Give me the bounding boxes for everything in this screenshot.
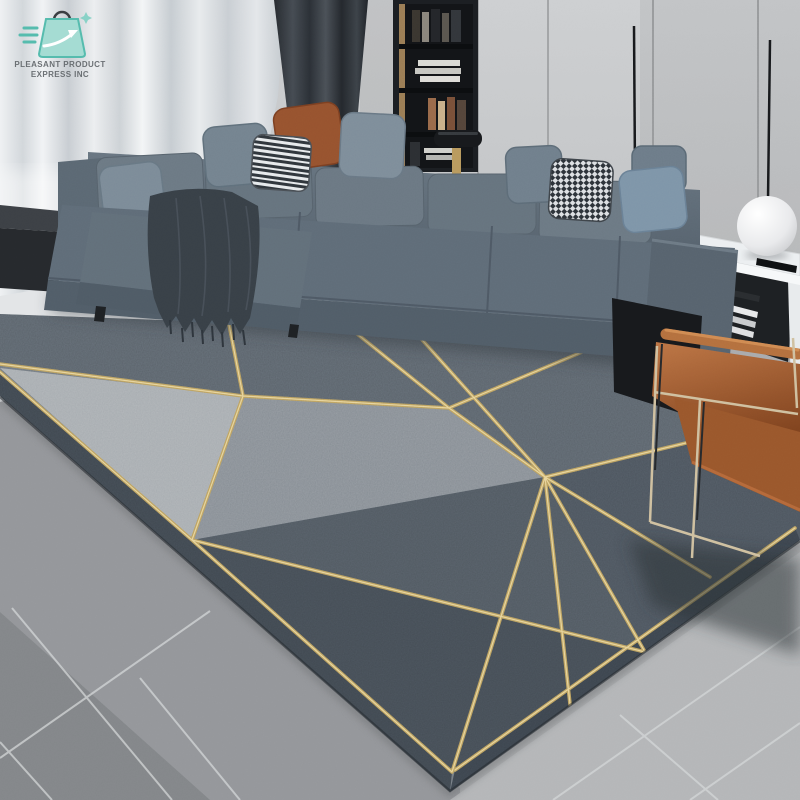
brand-name-line2: EXPRESS INC	[4, 70, 116, 80]
photo-grain	[0, 0, 800, 800]
photo-canvas	[0, 0, 800, 800]
speed-lines	[20, 28, 37, 42]
shopping-bag-express-icon	[10, 4, 110, 60]
bag-body	[39, 19, 85, 57]
sparkle	[80, 12, 92, 24]
living-room-product-photo: PLEASANT PRODUCT EXPRESS INC	[0, 0, 800, 800]
brand-name-line1: PLEASANT PRODUCT	[4, 60, 116, 70]
brand-logo: PLEASANT PRODUCT EXPRESS INC	[4, 4, 116, 79]
